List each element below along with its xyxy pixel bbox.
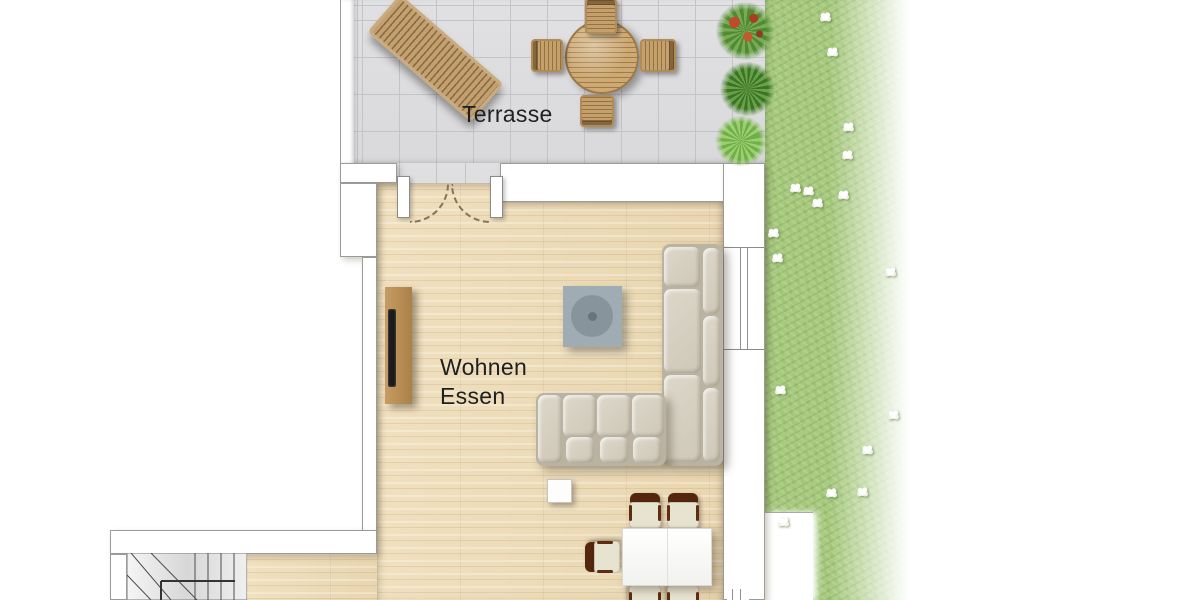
window-bottom-icon bbox=[727, 589, 749, 600]
daisy-icon bbox=[768, 228, 779, 238]
tv-icon bbox=[388, 309, 396, 387]
daisy-icon bbox=[812, 198, 823, 208]
corner-sofa-vertical bbox=[662, 244, 723, 466]
terrace-left-edge bbox=[340, 0, 354, 163]
terrace-chair-north-icon bbox=[585, 0, 617, 34]
daisy-icon bbox=[778, 517, 789, 527]
daisy-icon bbox=[862, 445, 873, 455]
label-essen: Essen bbox=[440, 384, 505, 408]
wall-jut-bottom-right bbox=[765, 512, 813, 600]
daisy-icon bbox=[838, 190, 849, 200]
dining-chair-icon bbox=[666, 493, 700, 529]
door-post-right bbox=[490, 176, 503, 218]
shrub-dark-icon bbox=[720, 62, 775, 116]
doorway-threshold bbox=[397, 163, 500, 184]
daisy-icon bbox=[888, 410, 899, 420]
terrace-chair-east-icon bbox=[640, 39, 676, 72]
daisy-icon bbox=[842, 150, 853, 160]
terrace-chair-west-icon bbox=[531, 39, 563, 72]
daisy-icon bbox=[772, 253, 783, 263]
dining-chair-icon bbox=[628, 493, 662, 529]
shrub-red-icon bbox=[716, 2, 774, 60]
label-wohnen: Wohnen bbox=[440, 355, 527, 379]
wall-top-right bbox=[500, 163, 728, 202]
corner-sofa-horizontal bbox=[536, 393, 666, 466]
daisy-icon bbox=[843, 122, 854, 132]
stove-plate bbox=[571, 295, 613, 337]
label-terrasse: Terrasse bbox=[462, 102, 553, 126]
terrace-chair-south-icon bbox=[580, 95, 614, 127]
daisy-icon bbox=[775, 385, 786, 395]
wall-top-left bbox=[340, 163, 397, 183]
daisy-icon bbox=[803, 186, 814, 196]
door-post-left bbox=[397, 176, 410, 218]
stove-icon bbox=[563, 286, 622, 347]
window-icon bbox=[724, 247, 764, 350]
winder-stairs-icon bbox=[127, 553, 247, 600]
dining-chair-icon bbox=[585, 540, 621, 574]
shrub-light-icon bbox=[715, 116, 767, 166]
wall-wing-left bbox=[110, 554, 127, 600]
daisy-icon bbox=[826, 488, 837, 498]
wall-left-upper bbox=[340, 183, 377, 257]
floor-plan: Terrasse Wohnen Essen bbox=[0, 0, 1200, 600]
dining-table-icon bbox=[622, 528, 712, 586]
daisy-icon bbox=[885, 267, 896, 277]
side-table-icon bbox=[547, 479, 572, 503]
wall-left-lower bbox=[362, 257, 377, 531]
daisy-icon bbox=[827, 47, 838, 57]
dining-chair-icon bbox=[666, 584, 700, 600]
daisy-icon bbox=[857, 487, 868, 497]
hall-floor bbox=[247, 553, 377, 600]
daisy-icon bbox=[790, 183, 801, 193]
dining-chair-icon bbox=[628, 584, 662, 600]
wall-wing-top bbox=[110, 530, 377, 554]
wall-right bbox=[723, 163, 765, 600]
daisy-icon bbox=[820, 12, 831, 22]
lawn-fade bbox=[830, 0, 940, 600]
